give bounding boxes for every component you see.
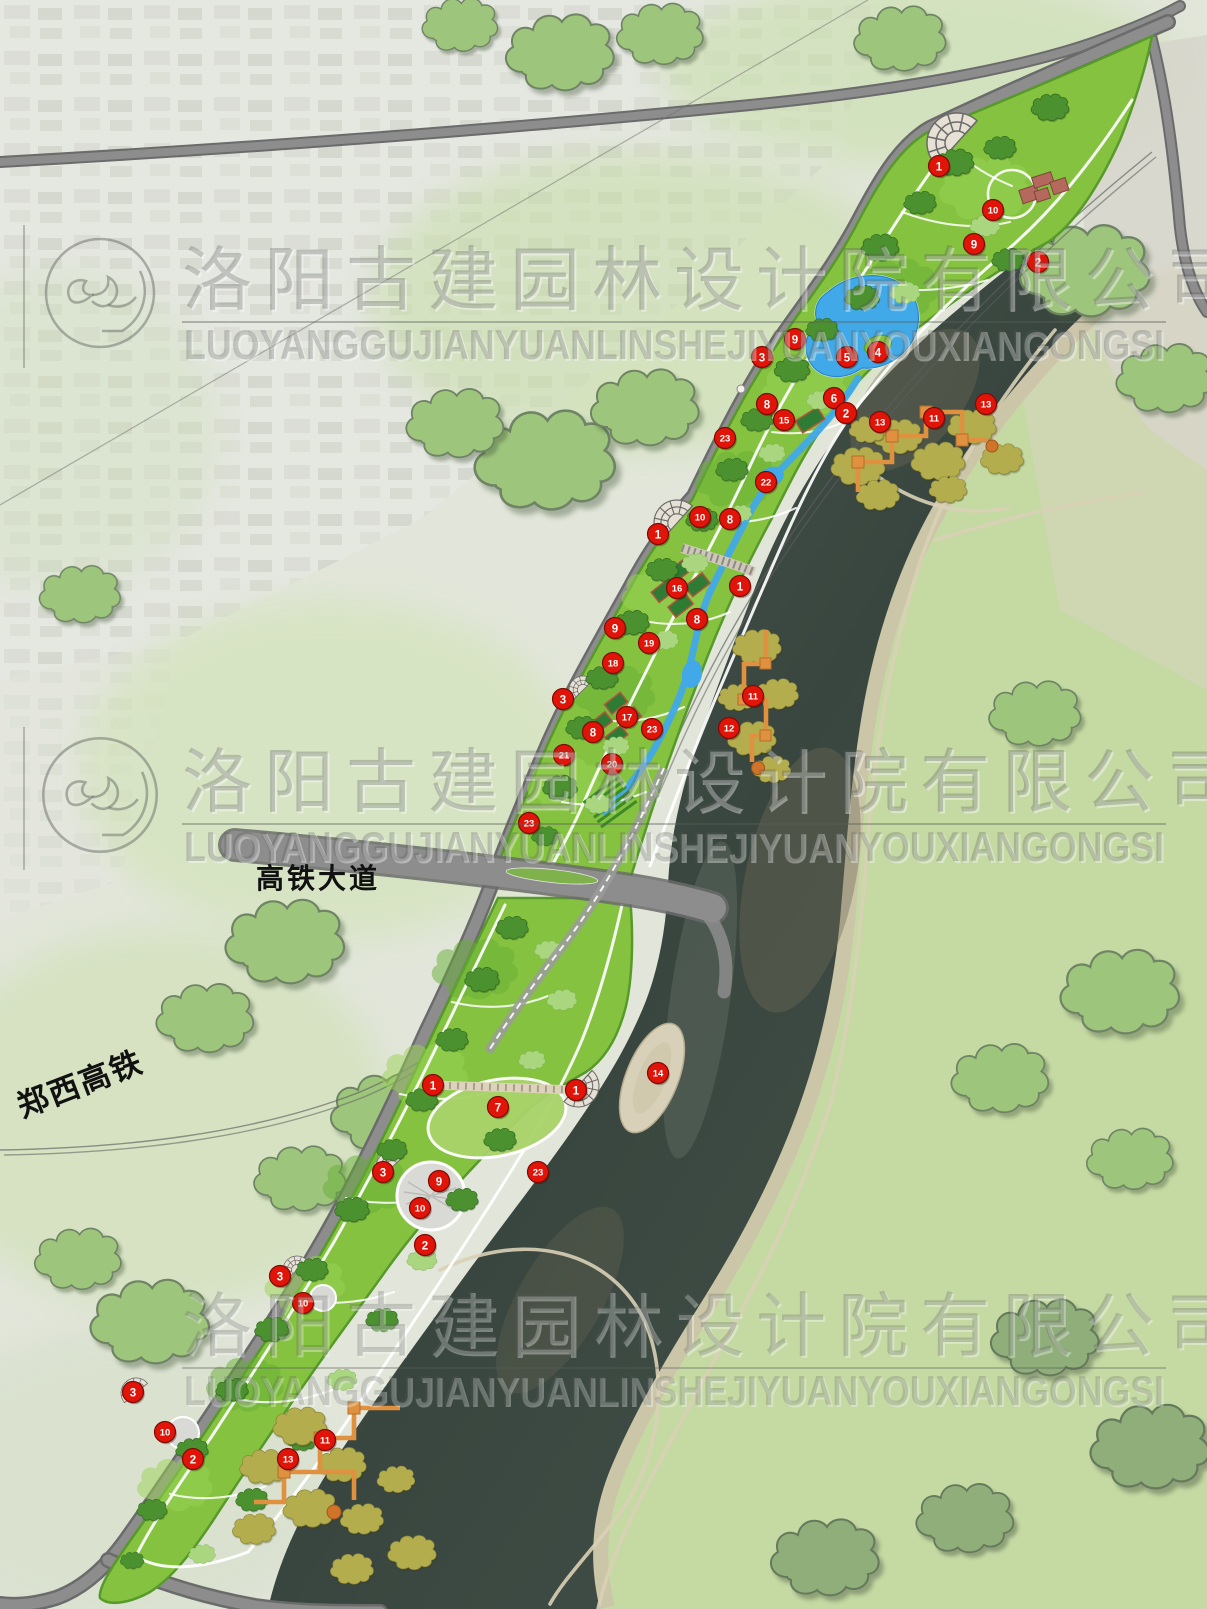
svg-text:23: 23 bbox=[720, 434, 731, 445]
svg-text:15: 15 bbox=[779, 416, 790, 427]
svg-text:10: 10 bbox=[160, 1428, 171, 1439]
svg-text:8: 8 bbox=[590, 727, 597, 739]
svg-text:23: 23 bbox=[533, 1168, 544, 1179]
svg-text:3: 3 bbox=[560, 694, 566, 706]
svg-text:1: 1 bbox=[573, 1085, 580, 1097]
svg-text:1: 1 bbox=[936, 161, 943, 173]
svg-text:8: 8 bbox=[764, 399, 771, 411]
site-plan-map: 高铁大道 郑西高铁 110929354861522313111322110811… bbox=[0, 0, 1207, 1609]
svg-text:8: 8 bbox=[727, 514, 734, 526]
svg-text:13: 13 bbox=[875, 418, 886, 429]
plan-canvas: 高铁大道 郑西高铁 110929354861522313111322110811… bbox=[0, 0, 1207, 1609]
svg-text:20: 20 bbox=[607, 760, 618, 771]
svg-text:3: 3 bbox=[130, 1387, 136, 1399]
svg-text:11: 11 bbox=[748, 692, 759, 703]
svg-text:5: 5 bbox=[844, 352, 851, 364]
svg-text:13: 13 bbox=[981, 400, 992, 411]
svg-text:2: 2 bbox=[1035, 257, 1041, 269]
svg-text:22: 22 bbox=[761, 478, 772, 489]
svg-text:8: 8 bbox=[694, 614, 701, 626]
svg-text:1: 1 bbox=[737, 581, 744, 593]
svg-text:3: 3 bbox=[277, 1271, 283, 1283]
svg-text:2: 2 bbox=[843, 408, 849, 420]
svg-text:13: 13 bbox=[283, 1455, 294, 1466]
svg-text:1: 1 bbox=[430, 1080, 437, 1092]
svg-text:2: 2 bbox=[190, 1454, 196, 1466]
svg-text:11: 11 bbox=[320, 1436, 331, 1447]
svg-text:10: 10 bbox=[988, 206, 999, 217]
svg-text:9: 9 bbox=[612, 623, 618, 635]
svg-text:2: 2 bbox=[422, 1240, 428, 1252]
svg-text:14: 14 bbox=[653, 1069, 664, 1080]
svg-text:10: 10 bbox=[415, 1204, 426, 1215]
svg-text:7: 7 bbox=[495, 1102, 501, 1114]
promenade-bridge bbox=[433, 1085, 576, 1090]
svg-text:4: 4 bbox=[875, 347, 882, 359]
svg-text:9: 9 bbox=[436, 1176, 442, 1188]
svg-text:12: 12 bbox=[724, 724, 735, 735]
svg-text:11: 11 bbox=[929, 414, 940, 425]
svg-text:18: 18 bbox=[608, 659, 619, 670]
svg-text:16: 16 bbox=[672, 584, 683, 595]
svg-text:3: 3 bbox=[759, 352, 765, 364]
svg-text:10: 10 bbox=[298, 1299, 309, 1310]
svg-text:19: 19 bbox=[644, 639, 655, 650]
svg-text:9: 9 bbox=[971, 239, 977, 251]
svg-text:21: 21 bbox=[559, 751, 570, 762]
svg-text:23: 23 bbox=[647, 725, 658, 736]
road-label: 高铁大道 bbox=[256, 862, 380, 894]
svg-text:17: 17 bbox=[622, 713, 633, 724]
svg-text:3: 3 bbox=[380, 1167, 386, 1179]
svg-text:10: 10 bbox=[695, 513, 706, 524]
svg-text:9: 9 bbox=[792, 334, 798, 346]
svg-text:6: 6 bbox=[831, 393, 837, 405]
svg-text:23: 23 bbox=[524, 819, 535, 830]
svg-text:1: 1 bbox=[655, 529, 662, 541]
